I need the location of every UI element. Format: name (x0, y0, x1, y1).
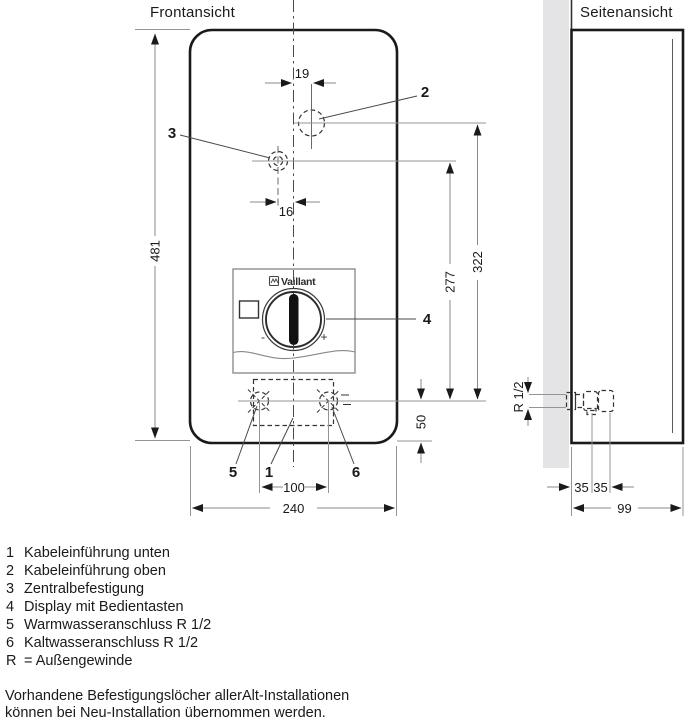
front-view: Vaillant - + (190, 0, 397, 467)
callout-2: 2 (421, 84, 429, 101)
dim-481: 481 (148, 240, 163, 262)
legend-label-5: Warmwasseranschluss R 1/2 (24, 617, 211, 633)
dial-plus-label: + (320, 330, 327, 344)
legend-key-2: 2 (6, 563, 14, 579)
legend-label-R: = Außengewinde (24, 653, 132, 669)
dim-277: 277 (443, 271, 458, 293)
note-line-2: können bei Neu-Installation übernommen w… (5, 705, 326, 720)
legend-key-R: R (6, 653, 16, 669)
legend-key-3: 3 (6, 581, 14, 597)
dim-19: 19 (295, 66, 309, 81)
side-view-title: Seitenansicht (580, 4, 673, 21)
brand-text: Vaillant (281, 276, 316, 288)
legend-key-1: 1 (6, 545, 14, 561)
front-view-title: Frontansicht (150, 4, 236, 21)
side-body-outline (572, 30, 684, 443)
dial-knob[interactable] (289, 294, 299, 345)
display-window (240, 301, 259, 318)
diagram-canvas: Vaillant - + (0, 0, 686, 720)
legend-label-4: Display mit Bedientasten (24, 599, 184, 615)
legend-label-6: Kaltwasseranschluss R 1/2 (24, 635, 198, 651)
dim-322: 322 (470, 251, 485, 273)
dim-thread: R 1/2 (511, 381, 526, 412)
legend-key-4: 4 (6, 599, 14, 615)
side-view (543, 0, 683, 468)
legend-label-2: Kabeleinführung oben (24, 563, 166, 579)
dim-99: 99 (617, 501, 631, 516)
footnote: Vorhandene Befestigungslöcher allerAlt-I… (5, 688, 349, 720)
callout-4: 4 (423, 311, 432, 328)
dim-16: 16 (279, 204, 293, 219)
legend-label-3: Zentralbefestigung (24, 581, 144, 597)
legend-key-5: 5 (6, 617, 14, 633)
callout-5: 5 (229, 464, 237, 481)
callout-3: 3 (168, 125, 176, 142)
legend-label-1: Kabeleinführung unten (24, 545, 170, 561)
dim-35a: 35 (574, 480, 588, 495)
installation-diagram: Vaillant - + (0, 0, 686, 720)
wall-section (543, 0, 569, 468)
callout-1: 1 (265, 464, 273, 481)
dim-50: 50 (414, 415, 429, 429)
dim-35b: 35 (593, 480, 607, 495)
note-line-1: Vorhandene Befestigungslöcher allerAlt-I… (5, 688, 349, 704)
legend-key-6: 6 (6, 635, 14, 651)
dial-minus-label: - (261, 330, 265, 344)
dim-240: 240 (283, 501, 305, 516)
callout-6: 6 (352, 464, 360, 481)
legend: 1 Kabeleinführung unten 2 Kabeleinführun… (6, 545, 211, 669)
dim-100: 100 (283, 480, 305, 495)
